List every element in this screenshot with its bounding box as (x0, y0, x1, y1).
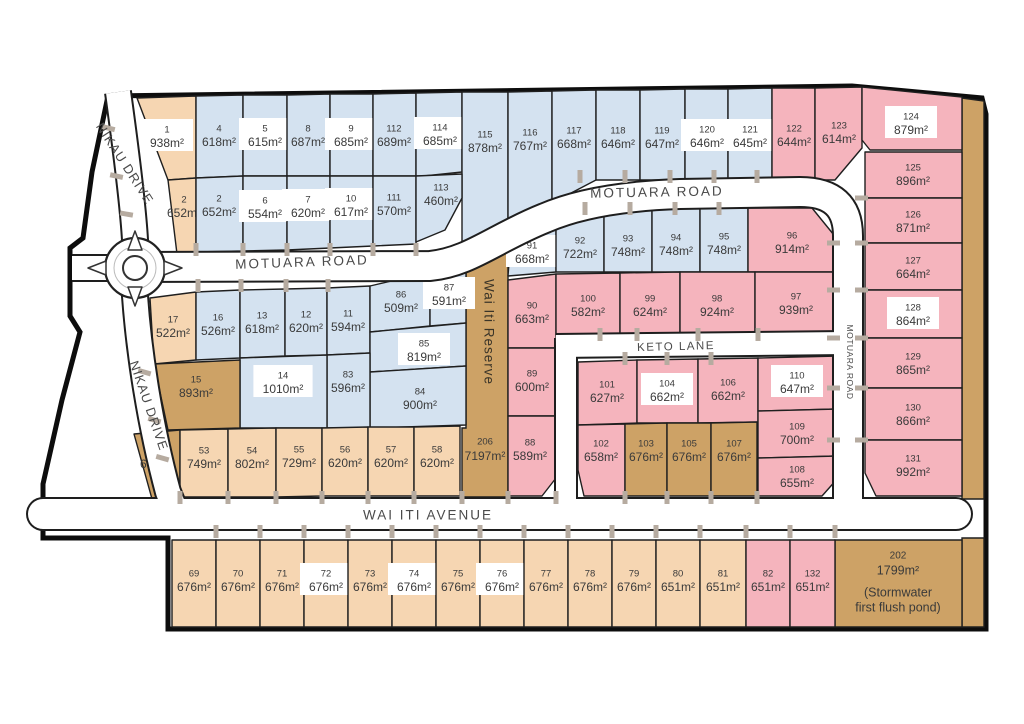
lot-109-number-label: 109 (789, 422, 805, 433)
lot-99-number-label: 99 (645, 294, 656, 305)
lot-106-number-label: 106 (720, 378, 736, 389)
lot-114-area-label: 685m² (423, 134, 457, 148)
lot-106-area-label: 662m² (711, 389, 745, 403)
lot-90-number-label: 90 (527, 301, 538, 312)
lot-13-area-label: 618m² (245, 322, 279, 336)
lot-132-area-label: 651m² (795, 580, 829, 594)
driveway-marker (226, 491, 231, 504)
lot-127-area-label: 664m² (896, 267, 930, 281)
lot-131-area-label: 992m² (896, 465, 930, 479)
lot-84-area-label: 900m² (403, 398, 437, 412)
driveway-marker (214, 525, 219, 538)
driveway-marker (194, 243, 199, 256)
lot-103-number-label: 103 (638, 439, 654, 450)
driveway-marker (665, 352, 670, 365)
lot-78-number-label: 78 (585, 569, 596, 580)
lot-121-area-label: 645m² (733, 136, 767, 150)
driveway-marker (855, 386, 868, 391)
lot-75-area-label: 676m² (441, 580, 475, 594)
lot-128-area-label: 864m² (896, 314, 930, 328)
lot-80-number-label: 80 (673, 569, 684, 580)
driveway-marker (827, 438, 840, 443)
driveway-marker (371, 243, 376, 256)
lot-15-area-label: 893m² (179, 386, 213, 400)
lot-16-number-label: 16 (213, 313, 224, 324)
lot-86-area-label: 509m² (384, 301, 418, 315)
driveway-marker (320, 491, 325, 504)
lot-11-area-label: 594m² (331, 320, 365, 334)
lot-118-area-label: 646m² (601, 137, 635, 151)
driveway-marker (598, 328, 603, 341)
lot-83-number-label: 83 (343, 370, 354, 381)
driveway-marker (827, 241, 840, 246)
lot-58-area-label: 620m² (420, 456, 454, 470)
stormwater-note-line2: first flush pond) (855, 600, 940, 614)
lot-128-number-label: 128 (905, 303, 921, 314)
lot-4-number-label: 4 (216, 124, 221, 135)
driveway-marker (698, 525, 703, 538)
lot-100-area-label: 582m² (571, 305, 605, 319)
lot-85-area-label: 819m² (407, 350, 441, 364)
driveway-marker (241, 243, 246, 256)
lot-132-number-label: 132 (805, 569, 821, 580)
lot-95-number-label: 95 (719, 232, 730, 243)
driveway-marker (623, 491, 628, 504)
lot-125-number-label: 125 (905, 163, 921, 174)
lot-10-area-label: 617m² (334, 205, 368, 219)
lot-1-area-label: 938m² (150, 136, 184, 150)
lot-5-number-label: 5 (262, 124, 267, 135)
lot-97-area-label: 939m² (779, 303, 813, 317)
lot-93-area-label: 748m² (611, 245, 645, 259)
lot-69-number-label: 69 (189, 569, 200, 580)
lot-82-number-label: 82 (763, 569, 774, 580)
lot-111-number-label: 111 (387, 193, 401, 204)
lot-5-area-label: 615m² (248, 135, 282, 149)
lot-56-number-label: 56 (340, 445, 351, 456)
road-label-motuara-east: MOTUARA ROAD (845, 325, 855, 400)
lot-74-number-label: 74 (409, 569, 420, 580)
driveway-marker (434, 525, 439, 538)
lot-116-area-label: 767m² (513, 139, 547, 153)
lot-17-area-label: 522m² (156, 326, 190, 340)
reserve-number-label: 206 (477, 437, 493, 448)
lot-112-number-label: 112 (386, 124, 401, 135)
driveway-marker (414, 243, 419, 256)
lot-99-area-label: 624m² (633, 305, 667, 319)
lot-126-area-label: 871m² (896, 221, 930, 235)
driveway-marker (566, 525, 571, 538)
driveway-marker (554, 491, 559, 504)
lot-73-number-label: 73 (365, 569, 376, 580)
lot-122-number-label: 122 (786, 124, 802, 135)
lot-85-number-label: 85 (419, 339, 430, 350)
lot-96-number-label: 96 (787, 231, 798, 242)
lot-120-area-label: 646m² (690, 136, 724, 150)
lot-2-east-number-label: 2 (216, 194, 221, 205)
driveway-marker (755, 491, 760, 504)
lot-77-number-label: 77 (541, 569, 552, 580)
lot-9-number-label: 9 (348, 124, 353, 135)
lot-95-area-label: 748m² (707, 243, 741, 257)
lot-87-number-label: 87 (444, 283, 455, 294)
lot-115-number-label: 115 (477, 130, 492, 141)
stormwater-number-label: 202 (890, 551, 907, 562)
lot-98-number-label: 98 (712, 294, 723, 305)
lot-105-area-label: 676m² (672, 450, 706, 464)
driveway-marker (326, 279, 331, 292)
driveway-marker (478, 525, 483, 538)
driveway-marker (654, 525, 659, 538)
lot-14-area-label: 1010m² (263, 382, 304, 396)
driveway-marker (284, 279, 289, 292)
lot-1-number-label: 1 (164, 125, 169, 136)
lot-119-number-label: 119 (654, 126, 669, 137)
lot-121-number-label: 121 (742, 125, 758, 136)
lot-114-number-label: 114 (432, 123, 447, 134)
lot-4-area-label: 618m² (202, 135, 236, 149)
lot-10-number-label: 10 (346, 194, 357, 205)
driveway-marker (855, 438, 868, 443)
driveway-marker (274, 491, 279, 504)
lot-57-number-label: 57 (386, 445, 397, 456)
lot-129-area-label: 865m² (896, 363, 930, 377)
lot-87-area-label: 591m² (432, 294, 466, 308)
lot-83-area-label: 596m² (331, 381, 365, 395)
lot-54-number-label: 54 (247, 446, 258, 457)
lot-110-number-label: 110 (789, 371, 804, 382)
lot-88-area-label: 589m² (513, 449, 547, 463)
lot-80-area-label: 651m² (661, 580, 695, 594)
lot-12-area-label: 620m² (289, 321, 323, 335)
lot-102-area-label: 658m² (584, 450, 618, 464)
lot-129-number-label: 129 (905, 352, 921, 363)
road-label-wai-iti-avenue: WAI ITI AVENUE (363, 508, 493, 523)
lot-78-area-label: 676m² (573, 580, 607, 594)
lot-122-area-label: 644m² (777, 135, 811, 149)
lot-12-number-label: 12 (301, 310, 312, 321)
lot-104-number-label: 104 (659, 379, 675, 390)
lot-131-number-label: 131 (905, 454, 921, 465)
stormwater-note-line1: (Stormwater (864, 585, 932, 599)
lot-76-area-label: 676m² (485, 580, 519, 594)
road-reserve-strip-lower (962, 538, 984, 627)
lot-6-number-label: 6 (262, 196, 267, 207)
lot-9-area-label: 685m² (334, 135, 368, 149)
driveway-marker (827, 288, 840, 293)
lot-72-number-label: 72 (321, 569, 332, 580)
lot-81-number-label: 81 (718, 569, 729, 580)
lot-124-area-label: 879m² (894, 123, 928, 137)
lot-107-number-label: 107 (726, 439, 742, 450)
site-plan-svg: 1938m²4618m²5615m²8687m²9685m²112689m²11… (0, 0, 1024, 724)
driveway-marker (827, 336, 840, 341)
driveway-marker (668, 170, 673, 183)
lot-55-area-label: 729m² (282, 456, 316, 470)
lot-96-area-label: 914m² (775, 242, 809, 256)
lot-70-area-label: 676m² (221, 580, 255, 594)
lot-7-area-label: 620m² (291, 206, 325, 220)
lot-2-east-area-label: 652m² (202, 205, 236, 219)
lot-119-area-label: 647m² (645, 137, 679, 151)
lot-93-number-label: 93 (623, 234, 634, 245)
lot-108-number-label: 108 (789, 465, 805, 476)
lot-120-number-label: 120 (699, 125, 715, 136)
lot-130-area-label: 866m² (896, 414, 930, 428)
driveway-marker (628, 202, 633, 215)
lot-91-area-label: 668m² (515, 252, 549, 266)
driveway-marker (346, 525, 351, 538)
lot-73-area-label: 676m² (353, 580, 387, 594)
lot-126-number-label: 126 (905, 210, 921, 221)
driveway-marker (258, 525, 263, 538)
driveway-marker (506, 491, 511, 504)
lot-84-number-label: 84 (415, 387, 426, 398)
lot-104-area-label: 662m² (650, 390, 684, 404)
lot-113-area-label: 460m² (424, 194, 458, 208)
lot-127-number-label: 127 (905, 256, 921, 267)
lot-11-number-label: 11 (343, 309, 353, 320)
lot-88-number-label: 88 (525, 438, 536, 449)
lot-81-area-label: 651m² (706, 580, 740, 594)
driveway-marker (623, 352, 628, 365)
lot-89-area-label: 600m² (515, 380, 549, 394)
driveway-marker (583, 202, 588, 215)
reserve-area-label: 7197m² (465, 449, 506, 463)
lot-123-area-label: 614m² (822, 132, 856, 146)
lot-8-number-label: 8 (305, 124, 310, 135)
lot-112-area-label: 689m² (377, 135, 411, 149)
lot-116-number-label: 116 (522, 128, 537, 139)
lot-58-number-label: 58 (432, 445, 443, 456)
driveway-marker (610, 525, 615, 538)
lot-82-area-label: 651m² (751, 580, 785, 594)
lot-77-area-label: 676m² (529, 580, 563, 594)
lot-16-area-label: 526m² (201, 324, 235, 338)
driveway-marker (855, 196, 868, 201)
lot-130-number-label: 130 (905, 403, 921, 414)
driveway-marker (855, 336, 868, 341)
lot-89-number-label: 89 (527, 369, 538, 380)
driveway-marker (855, 241, 868, 246)
lot-54-area-label: 802m² (235, 457, 269, 471)
lot-79-number-label: 79 (629, 569, 640, 580)
driveway-marker (827, 386, 840, 391)
lot-74-area-label: 676m² (397, 580, 431, 594)
driveway-marker (673, 202, 678, 215)
lot-115-area-label: 878m² (468, 141, 502, 155)
lot-70-number-label: 70 (233, 569, 244, 580)
road-label-keto-lane: KETO LANE (637, 340, 715, 354)
lot-113-number-label: 113 (433, 183, 448, 194)
driveway-marker (717, 202, 722, 215)
lot-13-number-label: 13 (257, 311, 268, 322)
lot-117-number-label: 117 (566, 126, 581, 137)
lot-2-west-number-label: 2 (181, 195, 186, 206)
lot-101-area-label: 627m² (590, 391, 624, 405)
driveway-marker (756, 328, 761, 341)
lot-8-area-label: 687m² (291, 135, 325, 149)
lot-6-area-label: 554m² (248, 207, 282, 221)
driveway-marker (696, 328, 701, 341)
driveway-marker (522, 525, 527, 538)
driveway-marker (196, 279, 201, 292)
lot-17-number-label: 17 (168, 315, 179, 326)
subdivision-site-plan: 1938m²4618m²5615m²8687m²9685m²112689m²11… (0, 0, 1024, 724)
lot-117-area-label: 668m² (557, 137, 591, 151)
lot-110-area-label: 647m² (780, 382, 814, 396)
driveway-marker (788, 525, 793, 538)
driveway-marker (178, 491, 183, 504)
driveway-marker (239, 279, 244, 292)
driveway-marker (712, 170, 717, 183)
lot-90-area-label: 663m² (515, 312, 549, 326)
lot-72-area-label: 676m² (309, 580, 343, 594)
lot-109-area-label: 700m² (780, 433, 814, 447)
driveway-marker (366, 491, 371, 504)
lot-125-area-label: 896m² (896, 174, 930, 188)
lot-92-area-label: 722m² (563, 247, 597, 261)
lot-57-area-label: 620m² (374, 456, 408, 470)
driveway-marker (665, 491, 670, 504)
lot-15-number-label: 15 (191, 375, 202, 386)
lot-103-area-label: 676m² (629, 450, 663, 464)
driveway-marker (709, 491, 714, 504)
lot-92-number-label: 92 (575, 236, 586, 247)
driveway-marker (623, 170, 628, 183)
lot-7-number-label: 7 (305, 195, 310, 206)
lot-69-area-label: 676m² (177, 580, 211, 594)
lot-86-number-label: 86 (396, 290, 407, 301)
lot-75-number-label: 75 (453, 569, 464, 580)
lot-76-number-label: 76 (497, 569, 508, 580)
lot-97-number-label: 97 (791, 292, 802, 303)
driveway-marker (635, 328, 640, 341)
lot-123-number-label: 123 (831, 121, 847, 132)
lot-118-number-label: 118 (610, 126, 625, 137)
lot-55-number-label: 55 (294, 445, 305, 456)
driveway-marker (302, 525, 307, 538)
driveway-marker (460, 491, 465, 504)
driveway-marker (755, 170, 760, 183)
driveway-marker (412, 491, 417, 504)
lot-98-area-label: 924m² (700, 305, 734, 319)
driveway-marker (855, 288, 868, 293)
driveway-marker (578, 170, 583, 183)
roundabout-island (123, 256, 147, 280)
lot-124-number-label: 124 (903, 112, 919, 123)
lot-108-area-label: 655m² (780, 476, 814, 490)
driveway-marker (833, 525, 838, 538)
lot-105-number-label: 105 (681, 439, 697, 450)
lot-53-area-label: 749m² (187, 457, 221, 471)
lot-102-number-label: 102 (593, 439, 609, 450)
driveway-marker (744, 525, 749, 538)
lot-107-area-label: 676m² (717, 450, 751, 464)
road-label-motuara-north: MOTUARA ROAD (590, 183, 724, 200)
driveway-marker (390, 525, 395, 538)
lot-94-area-label: 748m² (659, 244, 693, 258)
lot-111-area-label: 570m² (377, 204, 411, 218)
lot-53-number-label: 53 (199, 446, 210, 457)
road-reserve-strip-upper (962, 98, 984, 499)
lot-79-area-label: 676m² (617, 580, 651, 594)
lot-71-number-label: 71 (277, 569, 288, 580)
driveway-marker (709, 352, 714, 365)
lot-71-area-label: 676m² (265, 580, 299, 594)
lot-94-number-label: 94 (671, 233, 682, 244)
lot-101-number-label: 101 (599, 380, 615, 391)
stormwater-area-label: 1799m² (877, 563, 919, 577)
lot-56-area-label: 620m² (328, 456, 362, 470)
lot-100-number-label: 100 (580, 294, 596, 305)
wai-iti-reserve-name-label: Wai Iti Reserve (481, 279, 496, 385)
lot-14-number-label: 14 (278, 371, 289, 382)
